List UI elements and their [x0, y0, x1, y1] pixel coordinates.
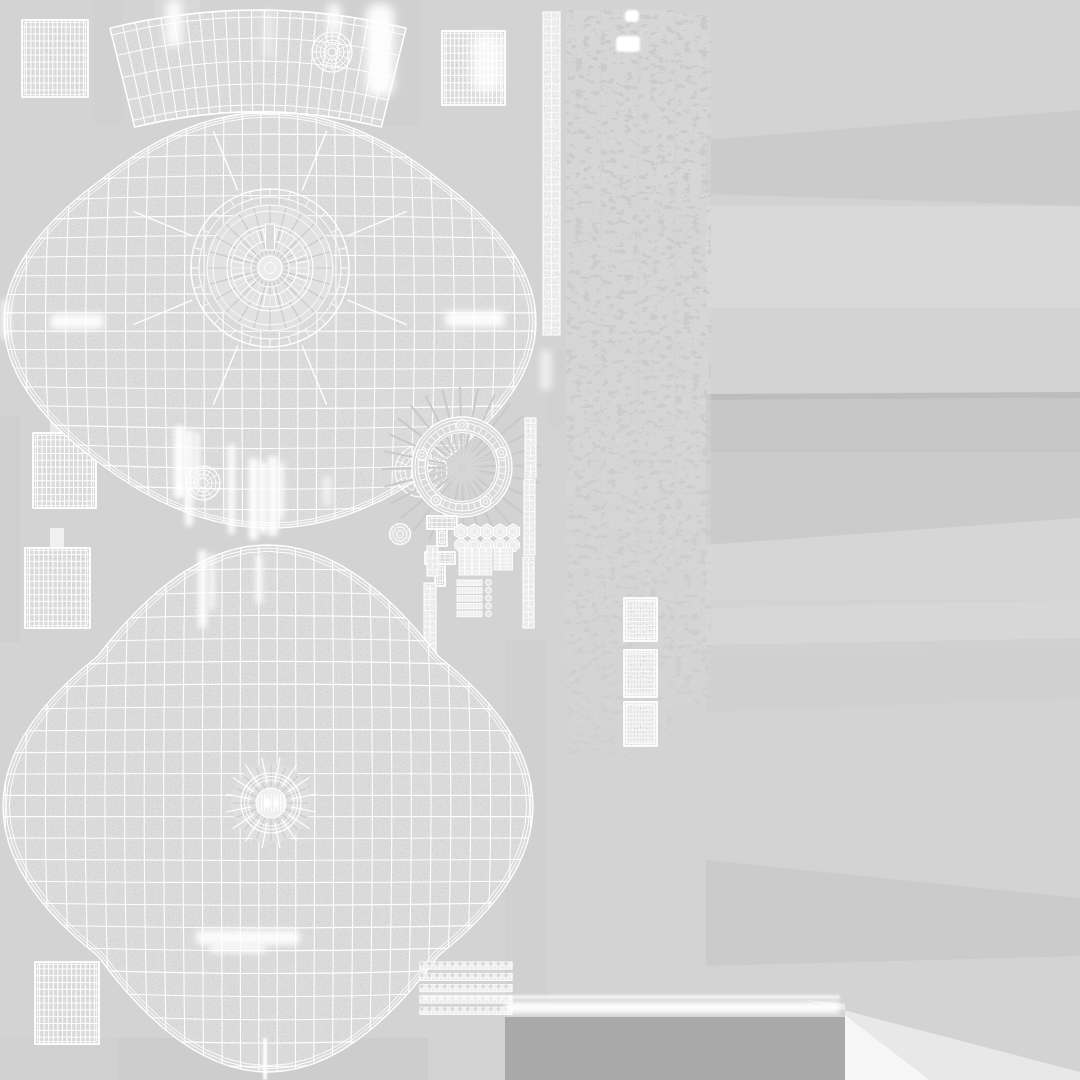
grid-patch-right-2 [624, 650, 657, 697]
uv-atlas-canvas [0, 0, 1080, 1080]
lug-bracket-stem [437, 529, 447, 546]
rod-end-dots [486, 580, 492, 617]
ladder-strip-right-1 [525, 418, 536, 477]
grid-patch-top-left [22, 20, 88, 97]
ladder-strip-right-3 [523, 557, 534, 628]
grid-patch-right-1 [624, 598, 657, 641]
grid-patch-bottom-left [35, 962, 99, 1044]
hex-bolt-heads [454, 524, 519, 539]
ladder-strip-left-1 [427, 546, 438, 576]
ladder-strip-right-2 [524, 479, 535, 555]
tension-rods-1 [459, 548, 492, 575]
ladder-strip-top [543, 12, 560, 335]
round-knob [390, 524, 411, 545]
tension-rods-2 [494, 548, 513, 570]
uv-texture-atlas-page [0, 0, 1080, 1080]
grid-patch-mid-left-b [25, 548, 90, 628]
grid-patch-right-3 [624, 702, 657, 746]
lug-bracket-bar [427, 516, 457, 529]
lug-strips [457, 580, 482, 617]
white-paint-mark [616, 36, 640, 52]
white-paint-mark [625, 10, 639, 22]
